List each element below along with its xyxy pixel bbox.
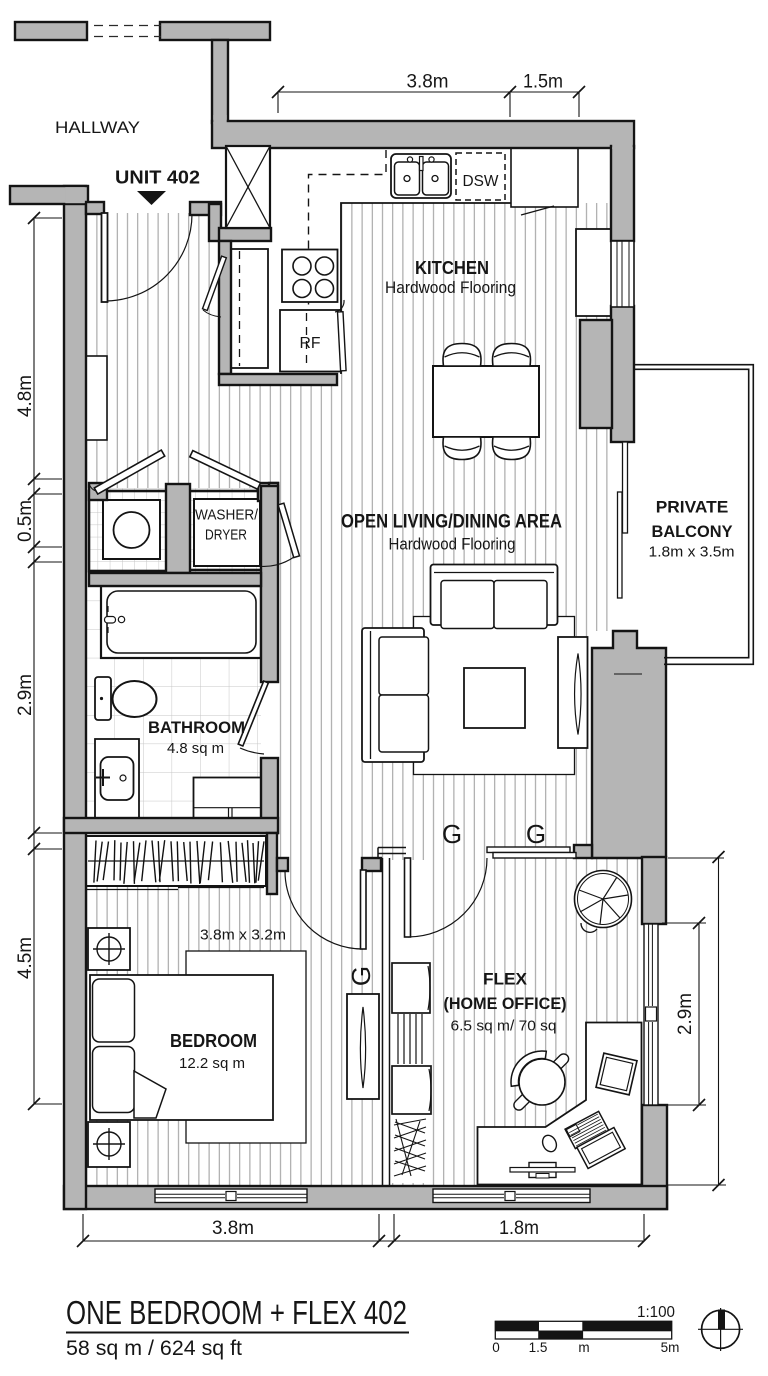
svg-text:OPEN LIVING/DINING AREA: OPEN LIVING/DINING AREA xyxy=(341,512,562,533)
svg-text:3.8m x 3.2m: 3.8m x 3.2m xyxy=(200,927,286,944)
svg-text:3.8m: 3.8m xyxy=(407,72,449,93)
svg-text:6.5 sq m/ 70 sq: 6.5 sq m/ 70 sq xyxy=(451,1018,557,1035)
svg-text:DSW: DSW xyxy=(463,173,500,190)
svg-text:0: 0 xyxy=(492,1340,500,1355)
svg-text:m: m xyxy=(578,1340,589,1355)
svg-text:HALLWAY: HALLWAY xyxy=(55,118,140,137)
svg-text:(HOME OFFICE): (HOME OFFICE) xyxy=(444,994,567,1013)
svg-text:KITCHEN: KITCHEN xyxy=(415,258,489,278)
svg-text:WASHER/: WASHER/ xyxy=(195,507,259,524)
svg-text:1.8m x 3.5m: 1.8m x 3.5m xyxy=(649,544,735,561)
svg-text:4.8m: 4.8m xyxy=(15,375,36,417)
svg-text:4.5m: 4.5m xyxy=(15,937,36,979)
svg-text:12.2 sq m: 12.2 sq m xyxy=(179,1055,245,1072)
svg-text:3.8m: 3.8m xyxy=(212,1218,254,1239)
svg-text:G: G xyxy=(526,819,546,849)
svg-text:BALCONY: BALCONY xyxy=(652,522,734,541)
svg-text:DRYER: DRYER xyxy=(205,527,247,544)
svg-text:BEDROOM: BEDROOM xyxy=(170,1031,257,1051)
svg-text:4.8 sq m: 4.8 sq m xyxy=(167,740,224,757)
svg-text:1.5: 1.5 xyxy=(529,1340,548,1355)
svg-text:ONE BEDROOM + FLEX 402: ONE BEDROOM + FLEX 402 xyxy=(66,1294,407,1331)
svg-text:FLEX: FLEX xyxy=(483,970,528,989)
svg-text:1:100: 1:100 xyxy=(637,1304,675,1321)
svg-text:1.5m: 1.5m xyxy=(523,72,563,93)
svg-text:UNIT 402: UNIT 402 xyxy=(115,168,200,188)
svg-text:Hardwood Flooring: Hardwood Flooring xyxy=(389,536,516,554)
svg-text:2.9m: 2.9m xyxy=(675,993,696,1035)
svg-text:G: G xyxy=(346,966,376,986)
svg-text:58 sq m / 624 sq ft: 58 sq m / 624 sq ft xyxy=(66,1337,242,1360)
svg-text:RF: RF xyxy=(300,335,321,352)
svg-text:BATHROOM: BATHROOM xyxy=(148,718,245,737)
svg-text:1.8m: 1.8m xyxy=(499,1218,539,1239)
svg-text:PRIVATE: PRIVATE xyxy=(656,498,729,517)
svg-text:G: G xyxy=(442,819,462,849)
svg-text:0.5m: 0.5m xyxy=(15,500,36,542)
svg-text:2.9m: 2.9m xyxy=(15,674,36,716)
svg-text:5m: 5m xyxy=(661,1340,680,1355)
svg-text:Hardwood Flooring: Hardwood Flooring xyxy=(385,279,516,297)
